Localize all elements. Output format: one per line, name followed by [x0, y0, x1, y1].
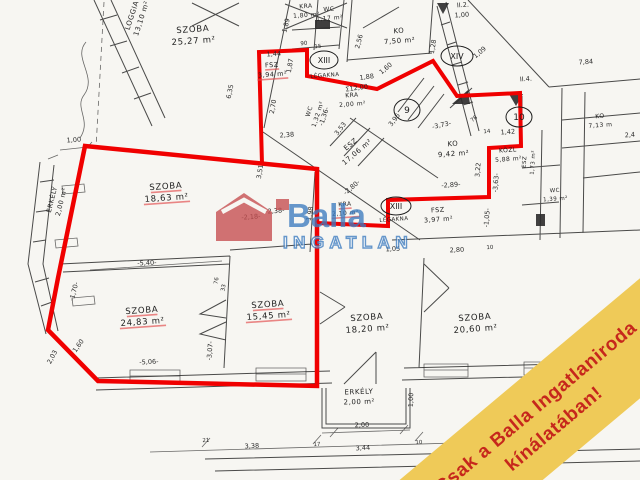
dimension-label: 21: [202, 438, 209, 444]
room-area: 2,00 m²: [339, 100, 366, 109]
room-label: ERKÉLY2,00 m²: [343, 386, 375, 406]
room-name: KRA: [299, 3, 313, 11]
room-area: 5,88 m²: [495, 155, 522, 164]
room-label: KO9,42 m²: [437, 139, 470, 159]
dimension-label: 3,38: [244, 442, 259, 451]
dimension-label: 90: [300, 41, 308, 48]
room-label-text: KÖZL5,88 m²: [494, 146, 522, 164]
dimension-label: II.4.: [520, 75, 533, 84]
dimension-label: 3,22: [473, 162, 482, 177]
room-label: KÖZL5,88 m²: [494, 146, 522, 164]
wavy-break-line: [80, 42, 88, 138]
dimension-label: 1,44: [266, 50, 281, 59]
room-area: 2,00 m²: [343, 397, 375, 406]
room-area: 20,60 m²: [453, 323, 498, 336]
room-label: SZOBA20,60 m²: [452, 311, 498, 336]
dimension-label: -3,07-: [205, 340, 215, 360]
room-label-text: WC1,39 m²: [542, 187, 568, 203]
room-label: KRA2,00 m²: [338, 91, 366, 109]
dimension-label: 10: [415, 440, 423, 446]
room-name: FSZ: [265, 61, 279, 70]
dimension-label: 14: [483, 129, 491, 136]
room-label: SZOBA18,63 m²: [142, 180, 190, 205]
room-label: LOGGIA13,10 m²: [123, 0, 151, 37]
room-name: ERKÉLY: [344, 386, 373, 396]
room-name: LÉGAKNA: [310, 70, 340, 80]
room-label-text: LÉGAKNA: [379, 214, 409, 224]
room-label: KO7,13 m: [588, 112, 613, 130]
room-area: 1,17 m²: [316, 14, 343, 23]
dimension-label: 1,28: [428, 39, 438, 55]
dimension-label: 78: [470, 114, 480, 123]
room-label-text: SZOBA20,60 m²: [452, 311, 498, 336]
dimension-label: II.2.: [457, 1, 470, 10]
room-label-text: ERKÉLY2,00 m²: [343, 386, 375, 406]
dimension-label: -1,70-: [68, 281, 81, 302]
dimension-label: 15: [314, 44, 322, 51]
room-label-text: ERKÉLY2,00 m²: [44, 184, 69, 217]
room-label-text: SZOBA25,27 m²: [170, 23, 216, 48]
dimension-label: 33: [220, 283, 227, 291]
room-label: SZOBA15,45 m²: [244, 298, 292, 323]
dimension-label: 1,60: [71, 338, 86, 354]
circle-label: XIII: [390, 202, 403, 211]
room-area: 25,27 m²: [171, 35, 216, 48]
dimension-label: 1,60: [378, 61, 394, 76]
dimension-label: 1,88: [359, 72, 374, 82]
room-area: 7,50 m²: [384, 36, 416, 46]
dimension-label: 2,70: [268, 99, 278, 115]
dimension-label: 2,4: [624, 131, 635, 140]
room-name: KO: [393, 27, 404, 36]
break-line: [96, 2, 104, 148]
room-label: SZOBA24,83 m²: [118, 304, 166, 329]
room-label: LÉGAKNA: [379, 214, 409, 224]
room-name: WC: [550, 188, 561, 195]
dimension-label: 2,00: [355, 421, 370, 430]
room-name: SZOBA: [458, 312, 492, 324]
room-label: ESZ1,73 m²: [521, 149, 537, 175]
room-name: KO: [447, 140, 458, 149]
dimension-label: -5,40-: [137, 258, 157, 267]
room-area: 18,20 m²: [345, 323, 390, 336]
dimension-label: 1,09: [472, 45, 488, 60]
dimension-label: 6,35: [225, 84, 236, 100]
dimension-label: 3,44: [355, 444, 370, 453]
dimension-label: 1,89: [280, 17, 291, 33]
circle-label: 9: [404, 106, 410, 116]
dimension-label: 2,03: [45, 349, 59, 366]
room-label-text: LOGGIA13,10 m²: [123, 0, 151, 37]
room-label: WC1,39 m²: [542, 187, 568, 203]
watermark-word: INGATLAN: [283, 233, 413, 252]
room-area: 1,73 m²: [529, 150, 538, 175]
room-label-text: FSZ3,97 m²: [423, 205, 453, 224]
room-label-text: KO7,13 m: [588, 112, 613, 130]
room-name: WC: [323, 6, 335, 14]
dimension-label: -2,80-: [342, 178, 362, 197]
dimension-label: 1,00: [66, 136, 81, 145]
dimension-label: -3,73-: [431, 119, 452, 131]
room-label: KO7,50 m²: [383, 26, 416, 46]
dimension-label: 1,00: [407, 393, 416, 408]
room-label: ERKÉLY2,00 m²: [44, 184, 69, 217]
room-label: LÉGAKNA: [310, 70, 340, 80]
room-label-text: KO9,42 m²: [437, 139, 470, 159]
dimension-label: 1,87: [285, 58, 295, 74]
dimension-label: 2,80: [449, 246, 464, 255]
dimension-label: 3,51: [255, 164, 265, 180]
room-name: LÉGAKNA: [379, 214, 409, 224]
room-area: 3,97 m²: [424, 214, 454, 224]
wall-pier: [536, 214, 545, 226]
circle-label: 10: [513, 113, 525, 123]
circle-label: XIII: [318, 56, 331, 65]
dimension-label: 10: [486, 245, 494, 251]
dimension-label: -5,06-: [139, 357, 159, 366]
room-name: SZOBA: [350, 312, 384, 324]
room-area: 1,39 m²: [543, 195, 568, 204]
dimension-label: -3,63-: [491, 172, 501, 192]
room-label-text: KRA2,00 m²: [338, 91, 366, 109]
room-area: 7,13 m: [588, 121, 612, 130]
dimension-label: 2,56: [353, 33, 364, 49]
room-label: SZOBA18,20 m²: [344, 311, 390, 336]
circle-label: XIV: [450, 52, 464, 61]
room-name: FSZ: [431, 206, 445, 215]
room-label: SZOBA25,27 m²: [170, 23, 216, 48]
room-name: ESZ: [522, 156, 529, 168]
dimension-label: 2,38: [279, 131, 294, 140]
red-underline: [265, 69, 279, 70]
room-label: FSZ3,97 m²: [423, 205, 453, 224]
dimension-label: 1,42: [500, 128, 515, 137]
dimension-label: 17: [313, 442, 321, 448]
room-label-text: ESZ1,73 m²: [521, 149, 537, 175]
room-label-text: LÉGAKNA: [310, 70, 340, 80]
balla-logo-icon: [216, 193, 289, 241]
dimension-label: 76: [213, 276, 220, 284]
room-name: KÖZL: [499, 146, 517, 154]
room-area: 9,42 m²: [438, 149, 470, 159]
dimension-label: -1,05-: [482, 207, 492, 227]
floor-plan-page: LOGGIA13,10 m²SZOBA25,27 m²KRA1,80 m²WC1…: [0, 0, 640, 480]
room-name: KO: [595, 113, 605, 121]
dimension-label: 1,00: [454, 11, 469, 20]
dimension-label: -2,89-: [441, 180, 461, 189]
room-label-text: KO7,50 m²: [383, 26, 416, 46]
dimension-label: 7,84: [578, 58, 593, 67]
floor-plan-svg: LOGGIA13,10 m²SZOBA25,27 m²KRA1,80 m²WC1…: [0, 0, 640, 480]
shaft-circle: XIII: [310, 51, 338, 69]
room-name: SZOBA: [176, 24, 210, 36]
room-label-text: SZOBA18,20 m²: [344, 311, 390, 336]
watermark-brand: Balla: [287, 197, 367, 234]
